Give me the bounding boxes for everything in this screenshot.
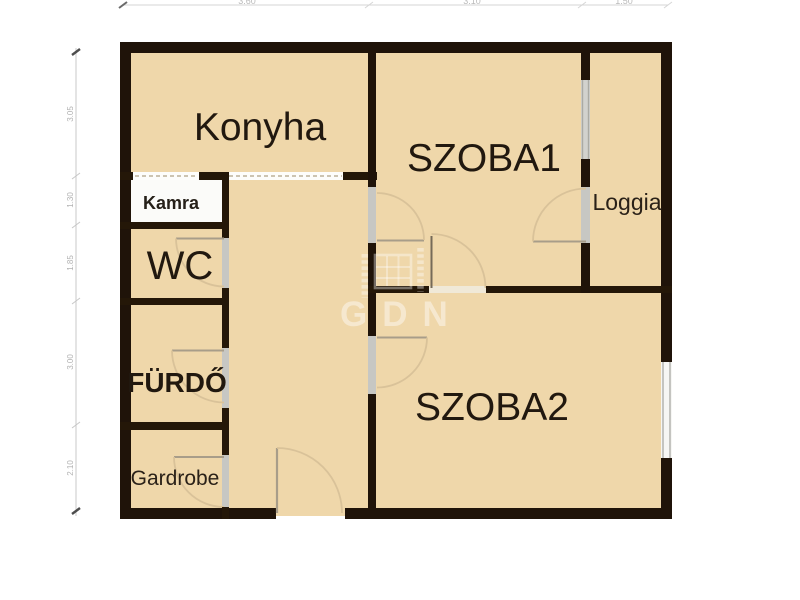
svg-text:1.50: 1.50 bbox=[615, 0, 633, 6]
svg-text:3.00: 3.00 bbox=[66, 354, 75, 370]
svg-text:GDN: GDN bbox=[340, 295, 463, 334]
svg-text:SZOBA2: SZOBA2 bbox=[415, 386, 569, 429]
svg-text:Gardrobe: Gardrobe bbox=[131, 467, 220, 490]
svg-text:3.60: 3.60 bbox=[238, 0, 256, 6]
svg-text:FÜRDŐ: FÜRDŐ bbox=[127, 367, 227, 398]
svg-text:3.10: 3.10 bbox=[463, 0, 481, 6]
svg-text:Kamra: Kamra bbox=[143, 193, 200, 213]
svg-text:Loggia: Loggia bbox=[592, 189, 661, 215]
svg-text:2.10: 2.10 bbox=[66, 460, 75, 476]
svg-text:3.05: 3.05 bbox=[66, 106, 75, 122]
svg-text:WC: WC bbox=[147, 244, 214, 288]
svg-text:1.85: 1.85 bbox=[66, 255, 75, 271]
svg-text:Konyha: Konyha bbox=[194, 106, 327, 149]
svg-text:SZOBA1: SZOBA1 bbox=[407, 137, 561, 180]
svg-text:1.30: 1.30 bbox=[66, 192, 75, 208]
